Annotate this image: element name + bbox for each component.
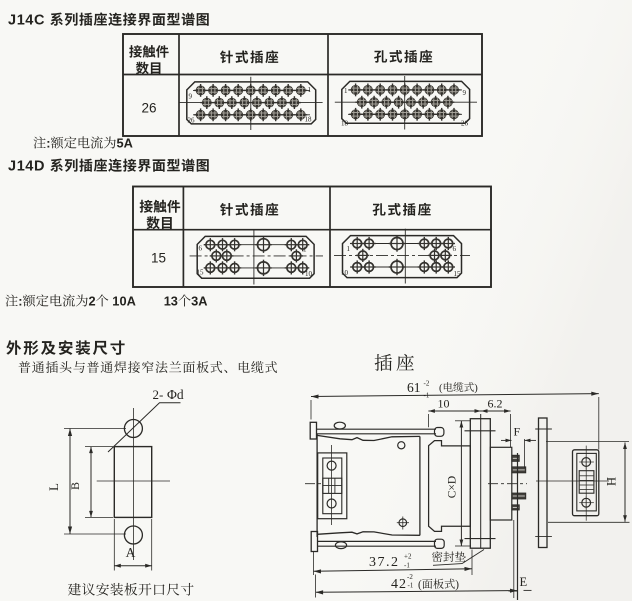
svg-text:): ): [474, 383, 478, 394]
svg-text:-1: -1: [408, 582, 414, 590]
svg-text:1: 1: [308, 86, 312, 94]
svg-text:10: 10: [305, 270, 313, 278]
svg-text:E: E: [520, 575, 528, 589]
svg-text:F: F: [514, 425, 521, 439]
svg-text:18: 18: [341, 120, 349, 128]
svg-text:-2: -2: [424, 380, 430, 388]
svg-text:1: 1: [347, 245, 351, 253]
svg-text:1: 1: [303, 246, 307, 254]
svg-text:L: L: [46, 483, 61, 491]
svg-text:26: 26: [188, 117, 196, 125]
svg-text:2-: 2-: [153, 387, 164, 402]
svg-text:6: 6: [199, 245, 203, 253]
svg-text:15: 15: [454, 270, 462, 278]
svg-text:): ): [455, 579, 459, 591]
svg-text:Φd: Φd: [167, 387, 184, 402]
svg-text:(: (: [439, 383, 443, 394]
svg-text:6.2: 6.2: [488, 397, 503, 411]
svg-text:5A: 5A: [117, 136, 133, 151]
svg-text:J14D: J14D: [8, 159, 44, 175]
svg-text:3A: 3A: [191, 294, 207, 309]
svg-text:15: 15: [151, 251, 166, 266]
svg-text:-1: -1: [424, 392, 430, 400]
svg-text:10: 10: [438, 397, 450, 411]
svg-text:42: 42: [391, 577, 407, 592]
svg-text:26: 26: [141, 101, 156, 116]
svg-text:C×D: C×D: [447, 476, 459, 498]
svg-text:6: 6: [453, 245, 457, 253]
svg-text:1: 1: [344, 87, 348, 95]
svg-text::: :: [18, 294, 22, 309]
svg-text:61: 61: [407, 380, 421, 395]
svg-text:(: (: [418, 579, 422, 591]
svg-text:B: B: [68, 482, 82, 490]
svg-text:J14C: J14C: [8, 13, 45, 29]
svg-text:10: 10: [341, 269, 349, 277]
svg-text:2: 2: [89, 294, 96, 309]
svg-text:+2: +2: [404, 553, 412, 561]
svg-text:18: 18: [305, 116, 313, 124]
svg-text:10A: 10A: [112, 294, 136, 309]
svg-text:H: H: [605, 477, 619, 486]
svg-text:37.2: 37.2: [369, 555, 400, 570]
svg-text:9: 9: [189, 93, 193, 101]
svg-text:26: 26: [461, 120, 469, 128]
svg-text:A: A: [126, 545, 136, 560]
svg-text::: :: [46, 136, 50, 151]
svg-text:13: 13: [164, 294, 178, 309]
svg-text:15: 15: [197, 269, 205, 277]
svg-text:9: 9: [463, 89, 467, 97]
svg-text:-2: -2: [407, 573, 413, 581]
svg-text:-1: -1: [404, 562, 410, 570]
